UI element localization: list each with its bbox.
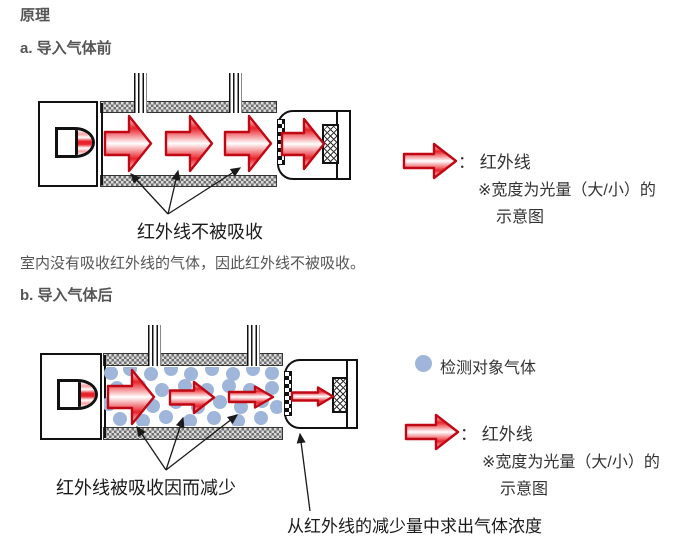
diagram-b-label: 红外线被吸收因而减少 [56, 474, 236, 500]
optical-window-a [277, 119, 285, 165]
legend-a-note-2: 示意图 [496, 203, 544, 227]
ir-arrow-b2 [170, 382, 214, 413]
bulb-base-b [60, 382, 81, 407]
page-title: 原理 [20, 7, 50, 25]
section-a-description: 室内没有吸收红外线的气体，因此红外线不被吸收。 [20, 254, 365, 274]
annotation-line-b2 [166, 418, 183, 470]
gas-pipe-a-2 [229, 73, 242, 113]
tube-wall-bottom-a [100, 175, 277, 187]
chamber-left-edge-b [104, 355, 106, 438]
bulb-base-a [58, 130, 78, 155]
legend-b-note-1: ※宽度为光量（大/小）的 [482, 448, 660, 472]
ir-arrow-a3 [225, 116, 271, 171]
gas-pipe-a-1 [134, 73, 147, 113]
diagram-a-label: 红外线不被吸收 [137, 218, 263, 244]
page: 原理 a. 导入气体前 室内没有吸收红外线的气体，因此红外线不被吸收。 b. 导… [0, 0, 695, 547]
legend-a-arrow-icon [404, 144, 456, 178]
legend-b-arrow-icon [406, 415, 458, 449]
ir-lamp-bulb-a [55, 127, 95, 158]
legend-b-note-2: 示意图 [500, 475, 548, 499]
tube-wall-top-a [100, 101, 277, 113]
legend-b-gas-label: 检测对象气体 [440, 354, 536, 378]
legend-a-note-1: ※宽度为光量（大/小）的 [478, 176, 656, 200]
legend-b-arrow-label: ： 红外线 [460, 420, 533, 445]
bulb-filament-a [78, 130, 92, 155]
gas-dot-legend-icon [415, 355, 432, 372]
legend-a-arrow-label: ： 红外线 [458, 148, 531, 173]
detector-housing-a [277, 110, 351, 180]
annotation-line-b3 [166, 415, 237, 470]
detector-element-b [332, 377, 348, 413]
optical-window-b [284, 371, 292, 416]
detector-element-a [322, 124, 339, 164]
ir-arrow-a1 [105, 116, 151, 171]
annotation-line-b-detector [300, 434, 310, 511]
ir-arrow-a2 [166, 116, 212, 171]
ir-arrow-b1 [108, 370, 154, 424]
gas-pipe-b-2 [247, 325, 260, 366]
ir-lamp-bulb-b [57, 379, 98, 410]
diagram-b-bottom-label: 从红外线的减少量中求出气体浓度 [287, 512, 542, 537]
section-a-heading: a. 导入气体前 [20, 40, 112, 58]
section-b-heading: b. 导入气体后 [20, 287, 113, 305]
ir-arrow-b3 [229, 387, 273, 408]
tube-wall-bottom-b [103, 427, 283, 440]
chamber-left-edge-a [101, 103, 103, 185]
bulb-filament-b [81, 382, 96, 407]
gas-molecules-group [102, 362, 284, 428]
gas-pipe-b-1 [148, 325, 161, 366]
